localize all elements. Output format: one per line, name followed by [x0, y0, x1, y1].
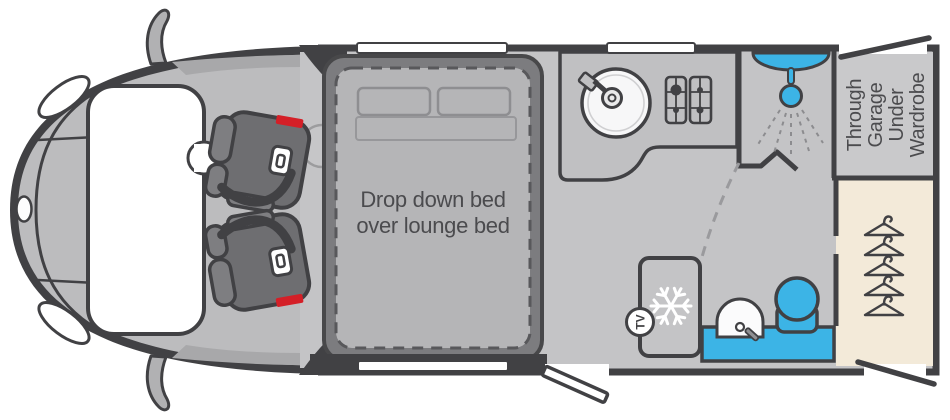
window-strip: [357, 43, 507, 53]
wardrobe-floor: [836, 176, 933, 366]
basin-drain: [736, 323, 744, 331]
garage-area: Through Garage Under Wardrobe: [836, 52, 933, 176]
tv-badge-icon: TV: [627, 309, 654, 336]
garage-label-line3: Under: [886, 88, 908, 142]
window-strip: [607, 43, 695, 53]
bed-bolster: [356, 117, 516, 140]
toilet-icon: [776, 278, 818, 320]
floorplan: Drop down bed over lounge bed: [0, 0, 950, 420]
cab: [10, 10, 338, 410]
bed-label-line2: over lounge bed: [356, 213, 509, 238]
floorplan-canvas: Drop down bed over lounge bed: [0, 0, 950, 420]
lounge-bed: Drop down bed over lounge bed: [324, 56, 542, 360]
garage-label-line4: Wardrobe: [907, 72, 929, 157]
wing-mirror-icon: [147, 10, 168, 64]
shower-stem: [788, 68, 794, 84]
windscreen: [88, 86, 204, 334]
fridge: [640, 258, 700, 356]
garage-label-line1: Through: [844, 79, 866, 151]
windscreen-join: [194, 144, 204, 172]
tv-label-text: TV: [634, 314, 648, 329]
pillow-icon: [358, 88, 430, 115]
window-strip: [358, 361, 508, 371]
bed-label-line1: Drop down bed: [360, 187, 505, 212]
shower-head-icon: [781, 86, 802, 107]
pillow-icon: [438, 88, 510, 115]
garage-label-line2: Garage: [865, 82, 887, 147]
wing-mirror-icon: [147, 356, 168, 410]
front-badge: [17, 197, 32, 222]
